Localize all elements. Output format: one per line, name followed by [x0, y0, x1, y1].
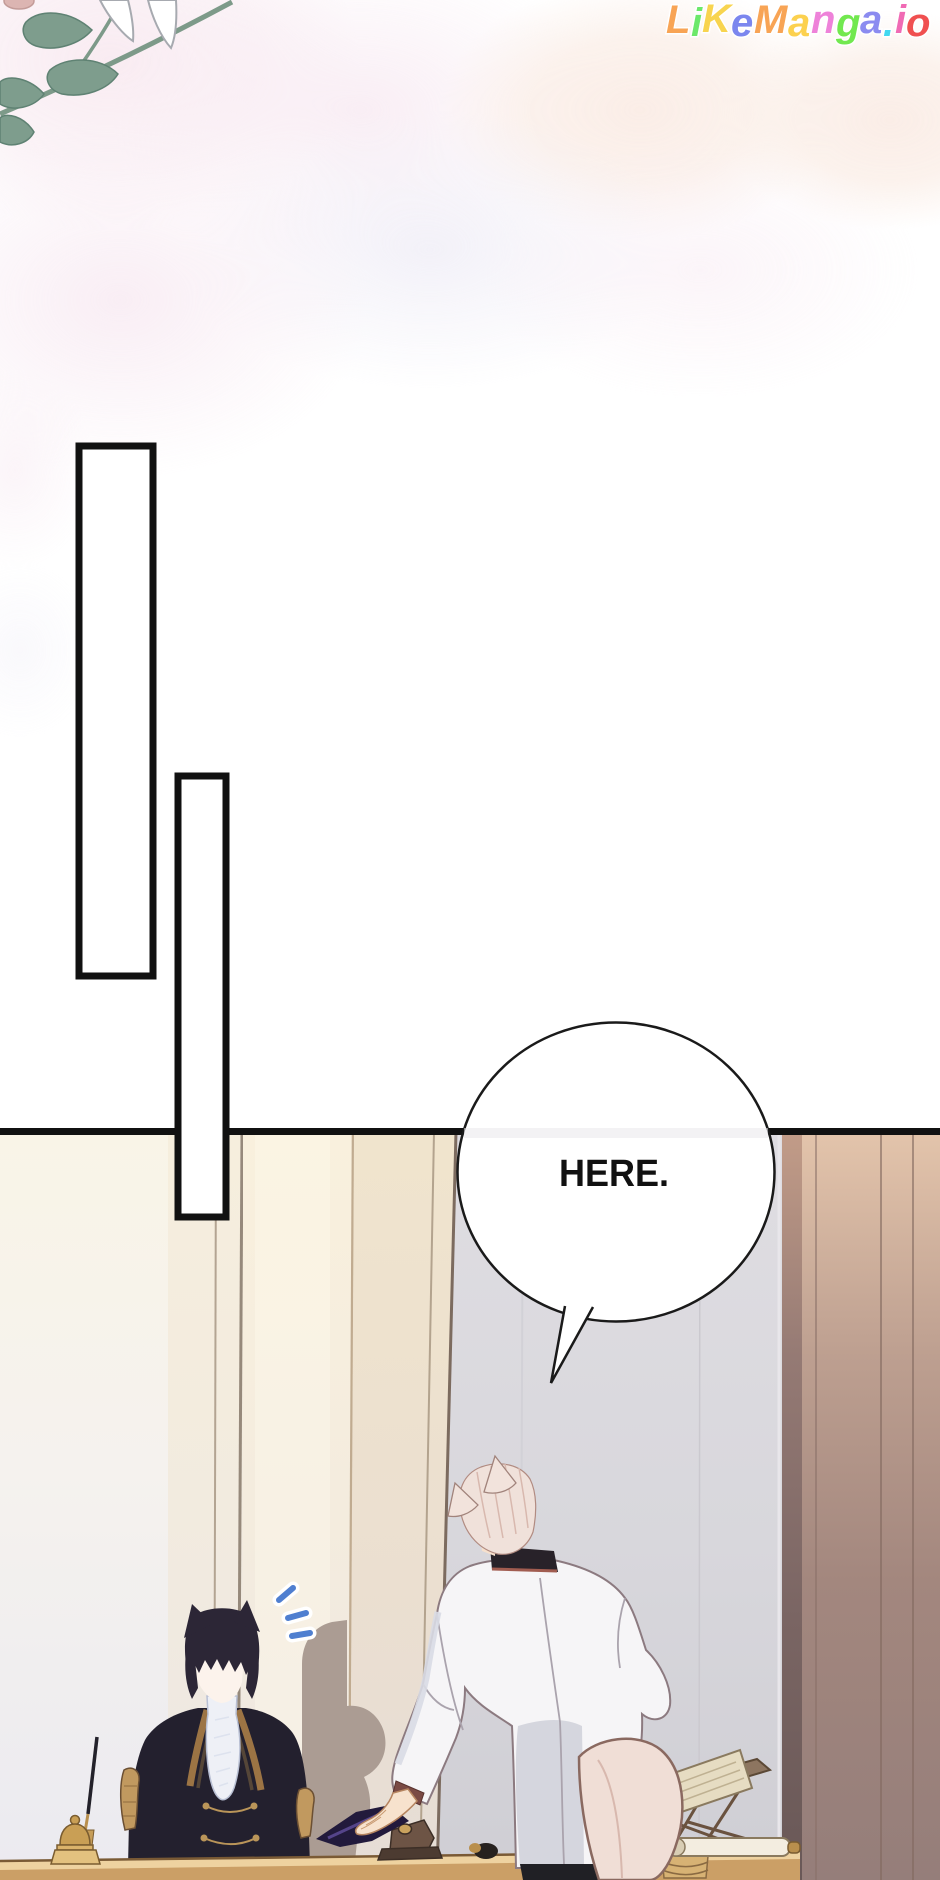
- svg-text:K: K: [702, 0, 734, 41]
- svg-text:g: g: [835, 1, 860, 45]
- svg-text:a: a: [788, 1, 810, 45]
- svg-text:a: a: [860, 0, 882, 42]
- svg-text:L: L: [666, 0, 690, 42]
- svg-text:M: M: [754, 0, 789, 42]
- svg-text:o: o: [906, 1, 930, 45]
- svg-text:HERE.: HERE.: [559, 1153, 669, 1195]
- svg-text:e: e: [731, 1, 753, 45]
- svg-text:.: .: [883, 1, 894, 45]
- svg-text:n: n: [811, 0, 835, 42]
